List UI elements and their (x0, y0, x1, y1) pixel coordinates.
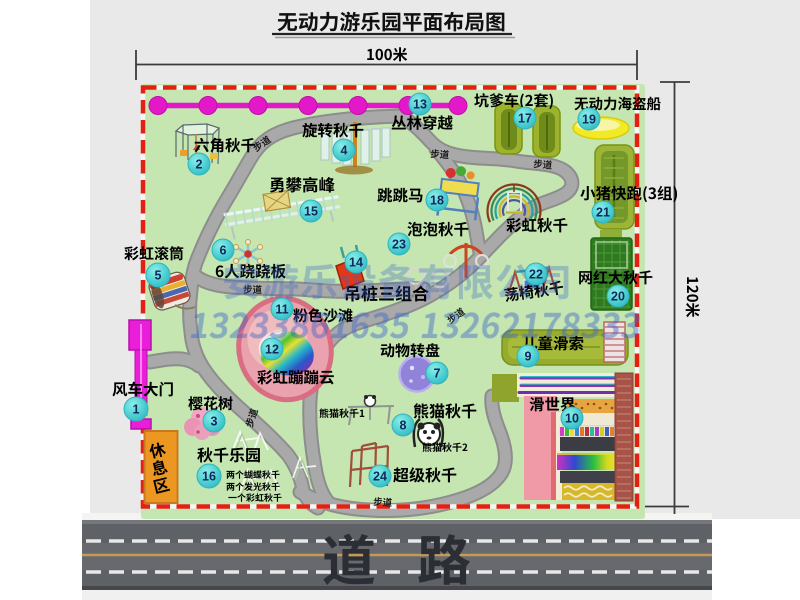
svg-text:14: 14 (349, 255, 363, 269)
svg-text:20: 20 (611, 289, 625, 303)
svg-text:10: 10 (565, 411, 579, 425)
svg-text:11: 11 (275, 302, 288, 316)
svg-text:7: 7 (434, 366, 441, 380)
svg-text:17: 17 (518, 111, 532, 125)
svg-text:19: 19 (582, 112, 596, 126)
svg-text:16: 16 (202, 469, 216, 483)
svg-text:2: 2 (196, 157, 203, 171)
svg-text:23: 23 (392, 237, 406, 251)
svg-text:1: 1 (133, 402, 140, 416)
svg-text:13: 13 (413, 97, 427, 111)
svg-text:6: 6 (220, 243, 227, 257)
svg-text:5: 5 (155, 268, 162, 282)
svg-text:3: 3 (211, 414, 218, 428)
svg-text:4: 4 (341, 143, 348, 157)
svg-text:9: 9 (525, 349, 532, 363)
svg-text:12: 12 (265, 342, 279, 356)
svg-text:8: 8 (400, 418, 407, 432)
svg-text:21: 21 (596, 205, 610, 219)
svg-text:24: 24 (373, 469, 387, 483)
svg-text:22: 22 (529, 267, 543, 281)
svg-text:18: 18 (430, 193, 444, 207)
svg-text:15: 15 (304, 204, 318, 218)
